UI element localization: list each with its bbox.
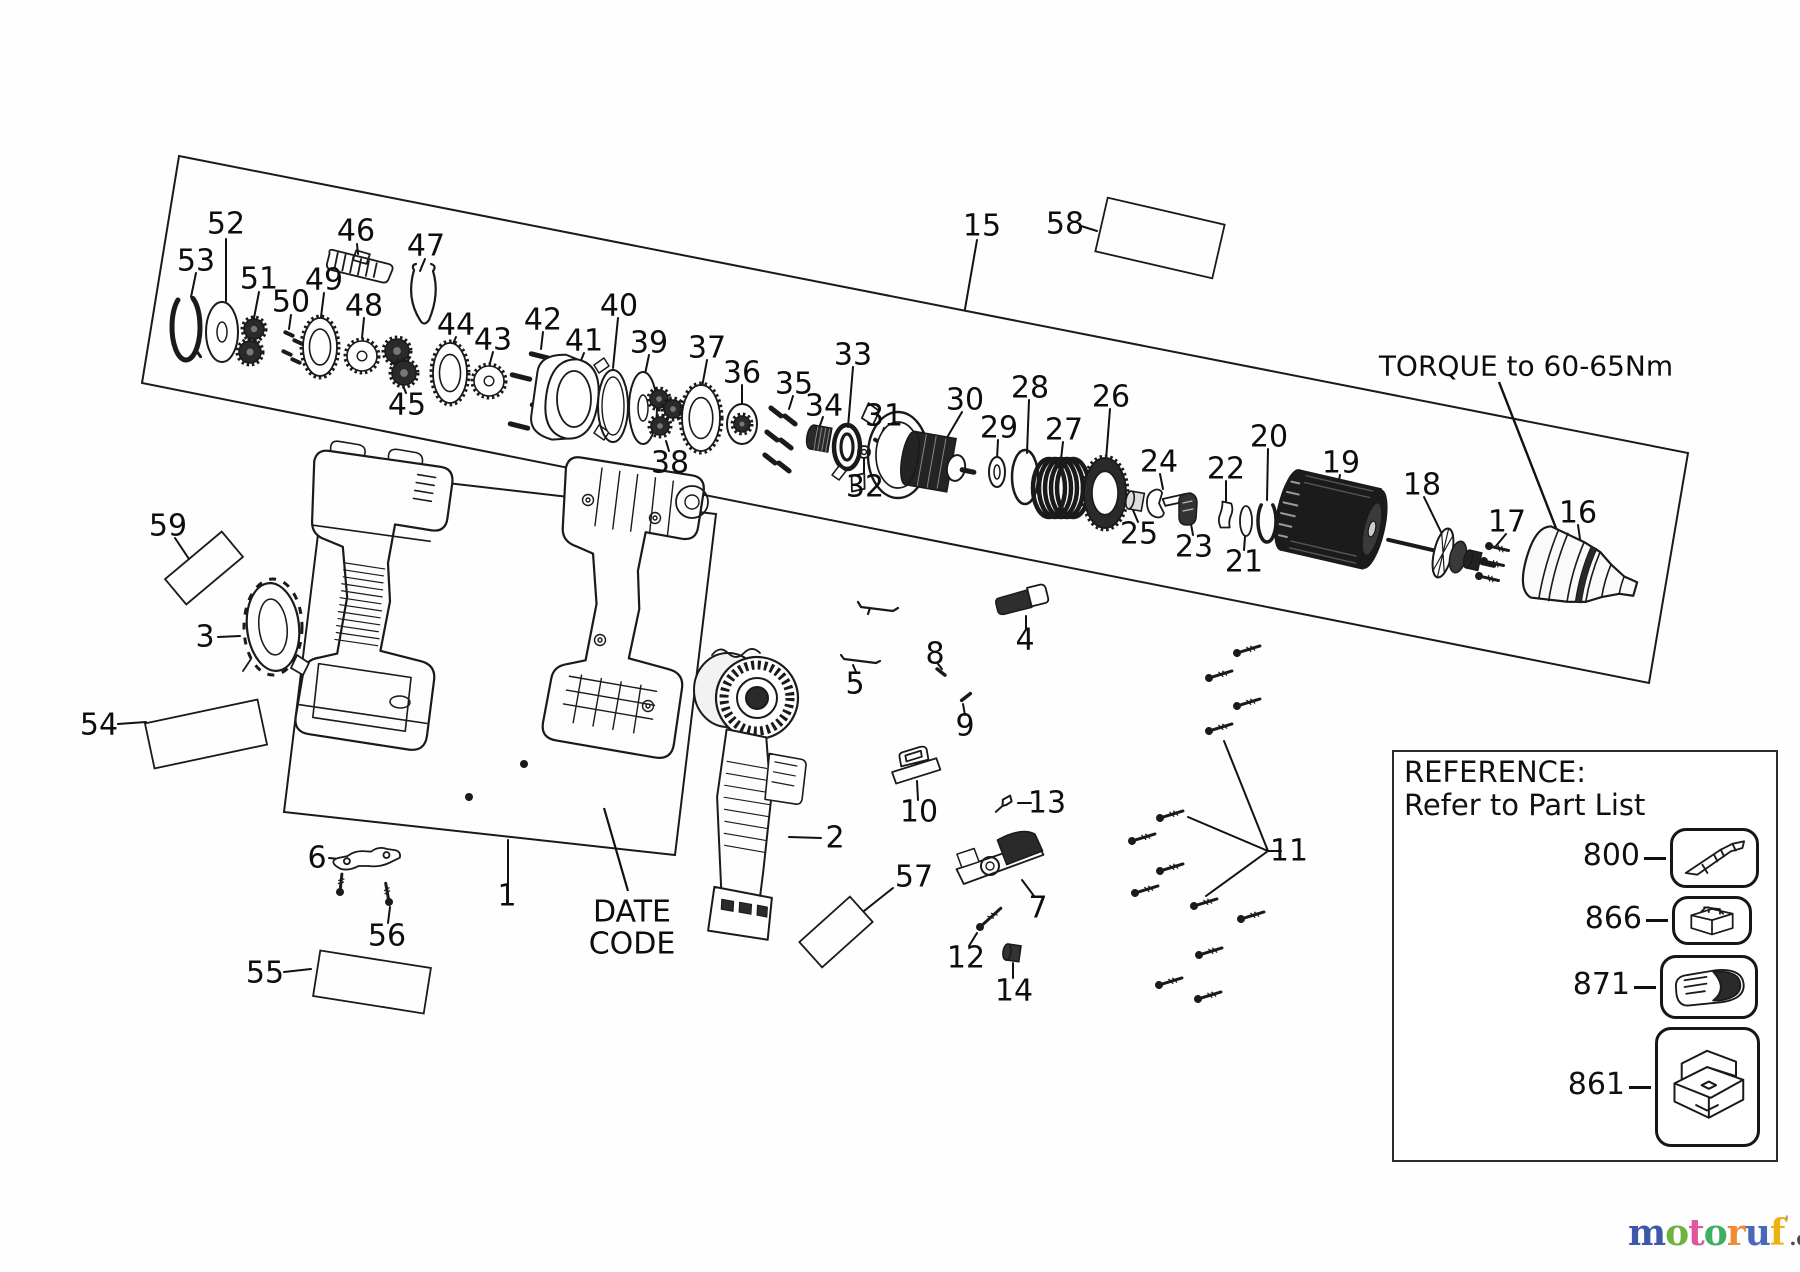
date-code-note-line1: DATE <box>593 895 671 930</box>
part-56 <box>382 883 394 907</box>
part-label-26: 26 <box>1092 380 1130 415</box>
reference-item-dash <box>1646 919 1668 922</box>
part-label-47: 47 <box>407 229 445 264</box>
part-label-7: 7 <box>1028 891 1047 926</box>
part-37 <box>680 383 722 453</box>
part-label-57: 57 <box>895 860 933 895</box>
part-label-48: 48 <box>345 289 383 324</box>
part-label-41: 41 <box>565 324 603 359</box>
reference-item-dash <box>1629 1086 1651 1089</box>
part-48 <box>345 339 379 373</box>
part-11 <box>1127 830 1156 846</box>
part-screw <box>512 375 529 379</box>
empty-label-box-55 <box>313 951 431 1014</box>
part-11 <box>1189 895 1218 911</box>
part-50 <box>283 351 290 354</box>
reference-item-box-866 <box>1672 896 1752 945</box>
part-52 <box>206 302 238 362</box>
part-label-53: 53 <box>177 244 215 279</box>
part-label-13: 13 <box>1028 786 1066 821</box>
part-label-44: 44 <box>437 308 475 343</box>
part-11 <box>1130 882 1159 898</box>
logo-letter: t <box>1688 1212 1704 1254</box>
reference-item-box-800 <box>1670 828 1759 888</box>
motoruf-logo: motoruf'.de <box>1628 1212 1800 1254</box>
leader-line-54 <box>118 722 146 724</box>
part-label-3: 3 <box>195 620 214 655</box>
part-label-27: 27 <box>1045 413 1083 448</box>
part-35 <box>781 440 791 448</box>
part-label-43: 43 <box>474 323 512 358</box>
part-44 <box>431 341 469 405</box>
part-4 <box>1027 584 1049 607</box>
part-17 <box>1474 571 1499 584</box>
part-label-52: 52 <box>207 207 245 242</box>
part-label-28: 28 <box>1011 371 1049 406</box>
leader-line-55 <box>284 969 311 972</box>
reference-item-dash <box>1634 986 1656 989</box>
part-label-42: 42 <box>524 303 562 338</box>
part-label-17: 17 <box>1488 505 1526 540</box>
part-5 <box>841 655 880 663</box>
part-label-18: 18 <box>1403 468 1441 503</box>
part-screw <box>336 874 346 897</box>
logo-letter: o <box>1704 1212 1727 1254</box>
logo-letter: o <box>1665 1212 1688 1254</box>
exploded-parts-diagram-page: 1234567891011121314151617181920212223242… <box>0 0 1800 1272</box>
battery-icon <box>1677 901 1747 940</box>
part-11 <box>1232 695 1261 711</box>
part-label-29: 29 <box>980 411 1018 446</box>
part-11 <box>1193 988 1222 1004</box>
part-11 <box>1155 807 1184 823</box>
part-label-56: 56 <box>368 919 406 954</box>
part-label-24: 24 <box>1140 445 1178 480</box>
part-label-40: 40 <box>600 289 638 324</box>
logo-suffix: .de <box>1789 1226 1800 1250</box>
part-53 <box>195 349 200 356</box>
part-35 <box>785 416 795 424</box>
empty-label-box-57 <box>799 897 872 968</box>
part-13 <box>993 796 1013 812</box>
part-6 <box>332 846 401 871</box>
part-47 <box>411 264 436 324</box>
part-rod <box>858 602 898 614</box>
part-22 <box>1218 501 1233 528</box>
leader-line-40 <box>613 318 618 368</box>
part-dot <box>465 793 473 801</box>
part-4 <box>995 590 1032 616</box>
leader-line-11 <box>1206 851 1268 896</box>
part-label-15: 15 <box>963 209 1001 244</box>
leader-line-20 <box>1267 449 1268 500</box>
part-label-1: 1 <box>497 879 516 914</box>
part-screw <box>510 424 527 428</box>
part-23 <box>1179 493 1197 525</box>
part-11 <box>1194 944 1223 960</box>
leader-line-3 <box>218 636 240 637</box>
torque-note: TORQUE to 60-65Nm <box>1378 350 1673 383</box>
part-11 <box>1155 860 1184 876</box>
part-11 <box>1154 974 1183 990</box>
part-label-19: 19 <box>1322 446 1360 481</box>
leader-line-2 <box>789 837 821 838</box>
leader-line-15 <box>965 240 977 309</box>
reference-item-number-871: 871 <box>1530 967 1630 1002</box>
part-label-51: 51 <box>240 262 278 297</box>
part-39 <box>629 372 657 444</box>
part-label-21: 21 <box>1225 545 1263 580</box>
part-label-11: 11 <box>1270 834 1308 869</box>
part-35 <box>765 455 775 463</box>
part-label-30: 30 <box>946 383 984 418</box>
part-11 <box>1232 642 1261 658</box>
part-label-5: 5 <box>845 667 864 702</box>
part-label-25: 25 <box>1120 517 1158 552</box>
part-20 <box>1258 505 1276 542</box>
part-label-55: 55 <box>246 956 284 991</box>
part-label-39: 39 <box>630 326 668 361</box>
leader-line-28 <box>1027 400 1029 453</box>
part-label-14: 14 <box>995 974 1033 1009</box>
part-10 <box>889 744 942 784</box>
part-30 <box>962 470 974 472</box>
part-label-10: 10 <box>900 795 938 830</box>
reference-title: REFERENCE: <box>1394 752 1776 789</box>
logo-letter: u <box>1745 1212 1770 1254</box>
reference-item-dash <box>1644 857 1666 860</box>
part-label-31: 31 <box>865 399 903 434</box>
part-50 <box>292 359 299 362</box>
part-3 <box>243 655 309 675</box>
part-49 <box>301 316 339 378</box>
part-41 <box>528 351 603 445</box>
leader-line-33 <box>848 367 853 427</box>
reference-item-number-800: 800 <box>1540 838 1640 873</box>
part-label-38: 38 <box>651 446 689 481</box>
reference-item-number-866: 866 <box>1542 901 1642 936</box>
part-label-36: 36 <box>723 356 761 391</box>
part-35 <box>771 408 781 416</box>
part-35 <box>767 432 777 440</box>
part-33 <box>834 425 860 469</box>
part-housing-left <box>294 450 453 751</box>
part-dot <box>520 760 528 768</box>
part-14 <box>1002 944 1021 962</box>
part-2 <box>765 753 807 804</box>
part-label-9: 9 <box>955 709 974 744</box>
part-12 <box>974 905 1003 932</box>
logo-letter: f <box>1770 1212 1785 1254</box>
part-45 <box>390 359 418 387</box>
part-17 <box>1484 541 1509 554</box>
logo-letter: r <box>1727 1212 1745 1254</box>
part-21 <box>1240 506 1252 536</box>
part-11 <box>1236 908 1265 924</box>
leader-line-26 <box>1106 409 1110 460</box>
part-51 <box>242 317 266 341</box>
part-2 <box>746 687 768 709</box>
reference-item-box-861 <box>1655 1027 1760 1147</box>
part-label-23: 23 <box>1175 530 1213 565</box>
date-code-note-line2: CODE <box>589 927 676 962</box>
part-5 <box>1033 459 1089 517</box>
empty-label-box-58 <box>1095 198 1224 279</box>
empty-label-box-54 <box>145 700 267 769</box>
part-label-35: 35 <box>775 367 813 402</box>
reference-item-number-861: 861 <box>1525 1067 1625 1102</box>
part-label-12: 12 <box>947 941 985 976</box>
part-label-20: 20 <box>1250 420 1288 455</box>
leader-line-57 <box>864 888 893 911</box>
charger-icon <box>1665 960 1753 1014</box>
part-label-16: 16 <box>1559 496 1597 531</box>
part-50 <box>285 332 292 335</box>
reference-panel: REFERENCE: Refer to Part List 8008668718… <box>1392 750 1778 1162</box>
part-label-58: 58 <box>1046 207 1084 242</box>
part-40 <box>598 370 628 442</box>
part-11 <box>1204 667 1233 683</box>
reference-subtitle: Refer to Part List <box>1394 789 1776 822</box>
part-35 <box>779 463 789 471</box>
part-label-22: 22 <box>1207 452 1245 487</box>
logo-letter: m <box>1628 1212 1665 1254</box>
part-label-54: 54 <box>80 708 118 743</box>
case-icon <box>1660 1032 1755 1142</box>
part-51 <box>237 339 263 365</box>
reference-item-box-871 <box>1660 955 1758 1019</box>
part-25 <box>1124 490 1144 511</box>
part-label-32: 32 <box>846 470 884 505</box>
part-29 <box>989 457 1005 487</box>
part-label-59: 59 <box>149 509 187 544</box>
part-label-6: 6 <box>307 841 326 876</box>
part-16 <box>1516 522 1645 624</box>
part-9 <box>962 694 971 701</box>
part-11 <box>1204 720 1233 736</box>
part-label-45: 45 <box>388 388 426 423</box>
part-43 <box>472 364 506 398</box>
part-label-33: 33 <box>834 338 872 373</box>
part-label-4: 4 <box>1015 623 1034 658</box>
part-label-8: 8 <box>925 637 944 672</box>
part-label-46: 46 <box>337 214 375 249</box>
part-label-37: 37 <box>688 331 726 366</box>
part-label-2: 2 <box>825 821 844 856</box>
drill-driver-icon <box>1675 833 1754 883</box>
part-label-49: 49 <box>305 263 343 298</box>
